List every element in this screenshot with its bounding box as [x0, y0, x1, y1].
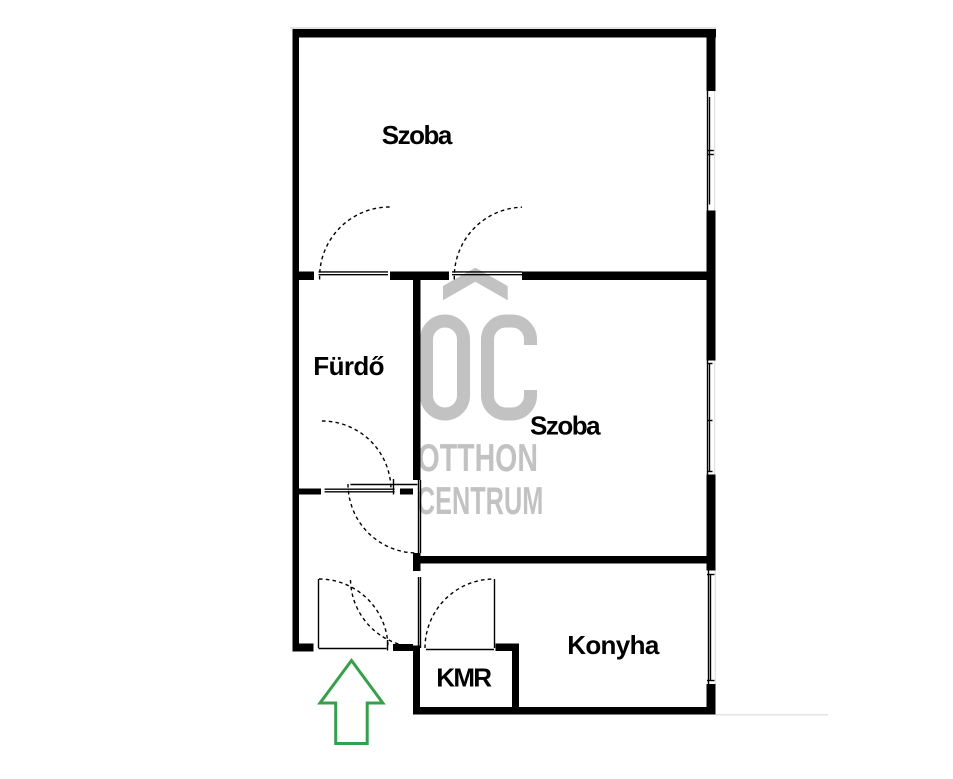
svg-text:KMR: KMR: [436, 663, 492, 693]
svg-text:Fürdő: Fürdő: [313, 351, 384, 381]
svg-text:CENTRUM: CENTRUM: [417, 480, 544, 523]
svg-text:OTTHON: OTTHON: [418, 437, 539, 480]
svg-text:Konyha: Konyha: [567, 630, 660, 660]
svg-text:Szoba: Szoba: [382, 120, 453, 150]
svg-text:Szoba: Szoba: [530, 411, 601, 441]
